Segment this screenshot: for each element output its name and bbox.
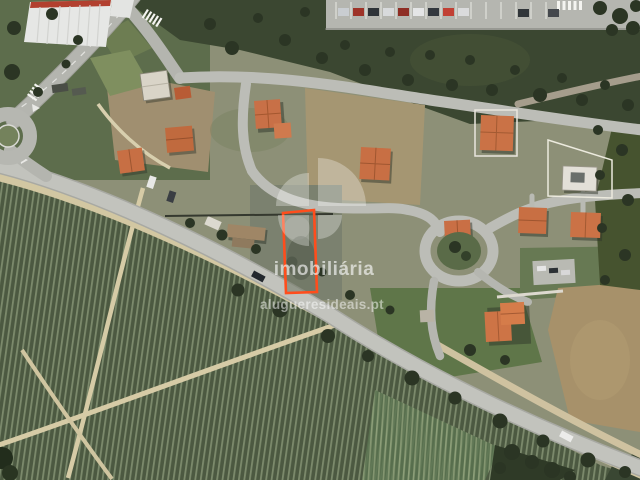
satellite-image: imobiliária alugueresideais.pt: [0, 0, 640, 480]
roundabout: [0, 114, 30, 158]
watermark-website-text: alugueresideais.pt: [260, 297, 384, 312]
watermark-brand-text: imobiliária: [274, 259, 375, 280]
parked-cars-row: [338, 8, 559, 17]
